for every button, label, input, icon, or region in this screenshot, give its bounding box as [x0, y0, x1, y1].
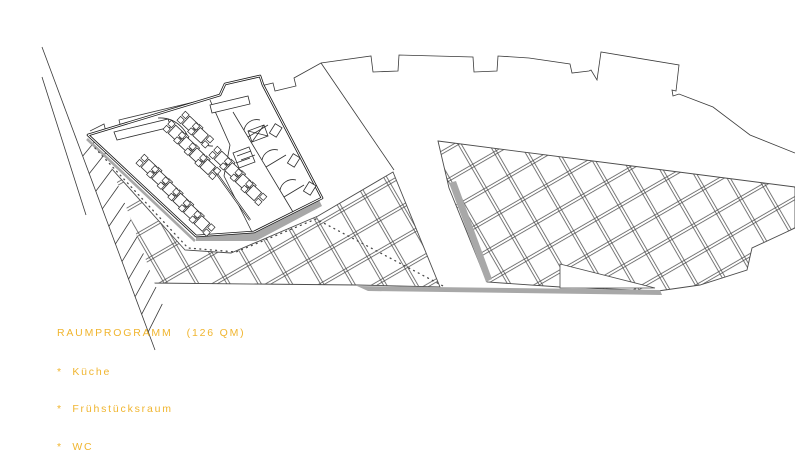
program-title: RAUMPROGRAMM (126 QM): [57, 327, 245, 340]
program-legend: RAUMPROGRAMM (126 QM) * Küche * Frühstüc…: [57, 302, 245, 466]
program-item-fruehstuecksraum: * Frühstücksraum: [57, 403, 245, 416]
plaza-grid-right: [438, 141, 795, 291]
facade-diagonal-wall: [321, 63, 394, 170]
program-item-wc: * WC: [57, 441, 245, 454]
program-item-kueche: * Küche: [57, 366, 245, 379]
